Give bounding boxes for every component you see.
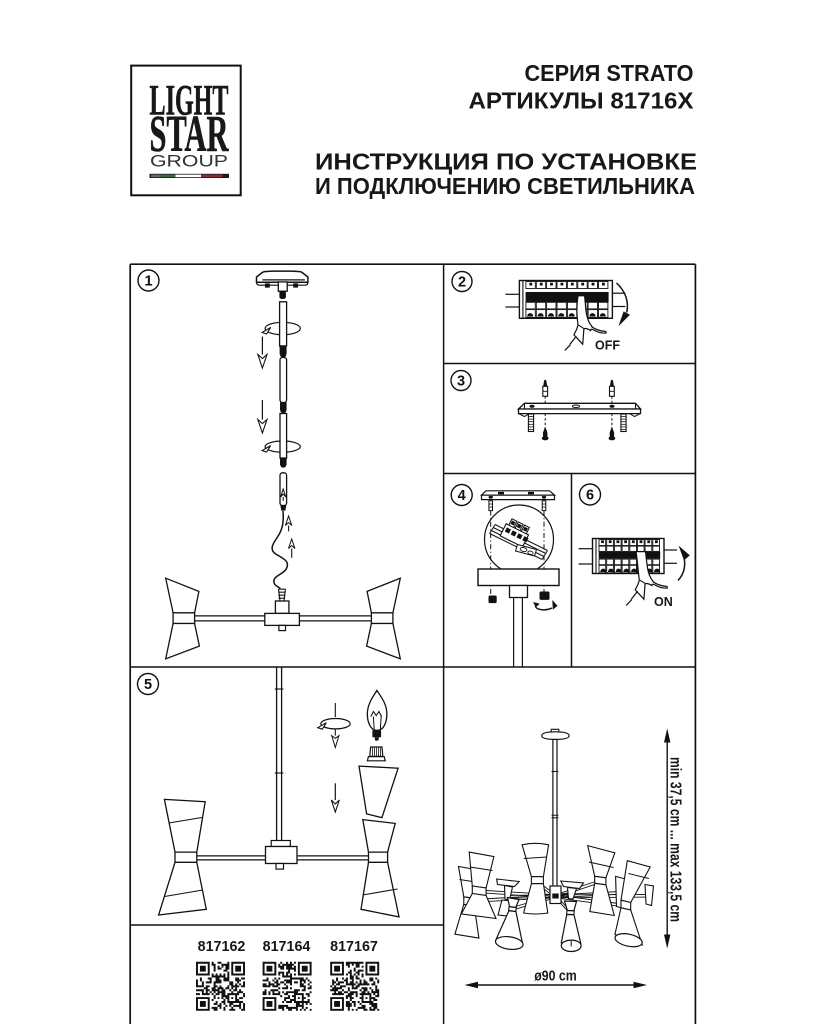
svg-text:OFF: OFF — [595, 339, 620, 353]
svg-text:5: 5 — [144, 677, 152, 693]
svg-text:4: 4 — [458, 488, 466, 504]
svg-text:817162: 817162 — [198, 939, 246, 955]
svg-text:817167: 817167 — [330, 939, 378, 955]
svg-text:ON: ON — [654, 595, 673, 609]
svg-text:ø90 cm: ø90 cm — [534, 967, 577, 984]
svg-text:min 37,5 cm ... max 133,5 cm: min 37,5 cm ... max 133,5 cm — [667, 757, 684, 922]
svg-text:2: 2 — [458, 275, 466, 291]
svg-text:И ПОДКЛЮЧЕНИЮ СВЕТИЛЬНИКА: И ПОДКЛЮЧЕНИЮ СВЕТИЛЬНИКА — [315, 173, 695, 199]
svg-text:АРТИКУЛЫ 81716X: АРТИКУЛЫ 81716X — [469, 88, 694, 114]
svg-text:6: 6 — [586, 488, 594, 504]
svg-text:1: 1 — [144, 274, 152, 290]
svg-text:СЕРИЯ STRATO: СЕРИЯ STRATO — [525, 60, 694, 86]
svg-text:GROUP: GROUP — [150, 152, 228, 171]
svg-text:817164: 817164 — [263, 939, 311, 955]
svg-text:3: 3 — [457, 374, 465, 390]
svg-text:ИНСТРУКЦИЯ ПО УСТАНОВКЕ: ИНСТРУКЦИЯ ПО УСТАНОВКЕ — [315, 148, 697, 174]
